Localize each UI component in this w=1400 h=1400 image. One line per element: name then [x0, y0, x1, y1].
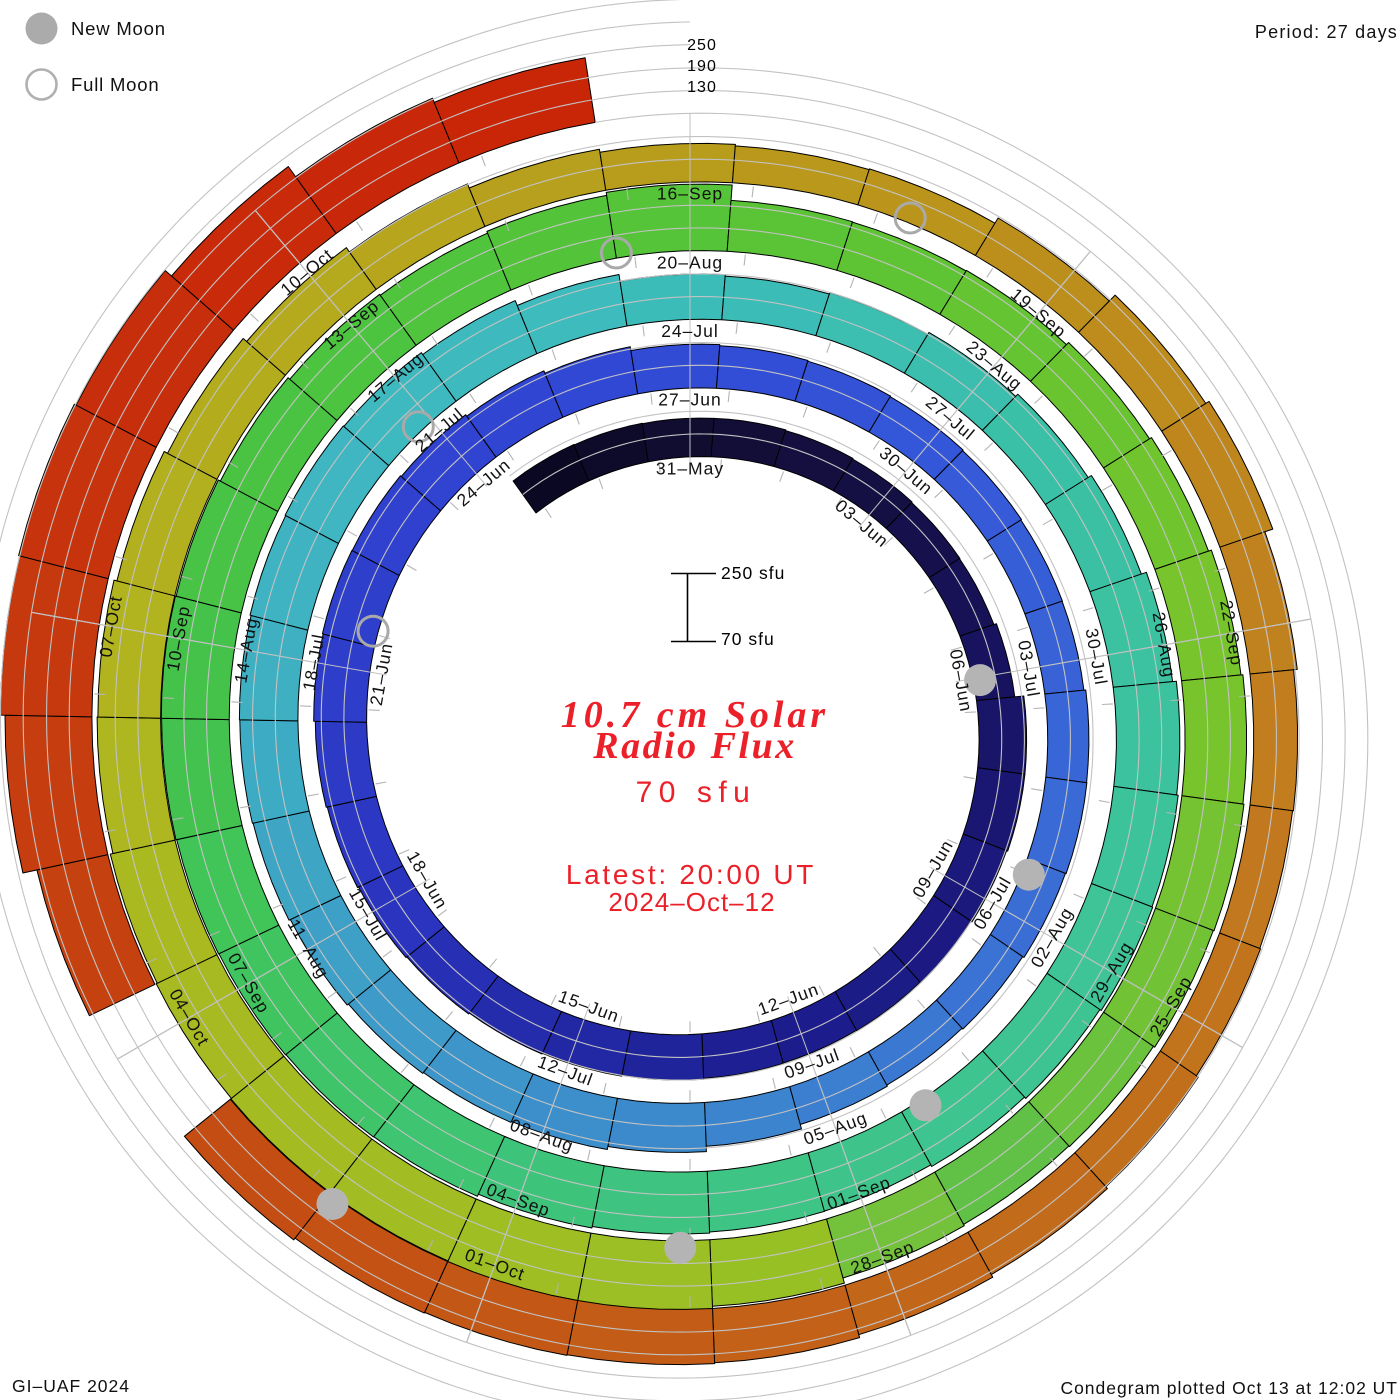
svg-text:Full Moon: Full Moon — [71, 74, 159, 95]
svg-text:New Moon: New Moon — [71, 18, 166, 39]
svg-text:250 sfu: 250 sfu — [721, 563, 785, 583]
svg-text:20–Aug: 20–Aug — [657, 252, 723, 272]
svg-text:2024–Oct–12: 2024–Oct–12 — [608, 887, 775, 917]
svg-text:GI–UAF 2024: GI–UAF 2024 — [12, 1376, 130, 1396]
svg-text:70 sfu: 70 sfu — [636, 776, 757, 809]
svg-text:27–Jun: 27–Jun — [658, 390, 721, 410]
svg-text:24–Jul: 24–Jul — [661, 321, 719, 341]
svg-text:Latest: 20:00 UT: Latest: 20:00 UT — [566, 859, 816, 890]
svg-text:250: 250 — [687, 37, 717, 54]
svg-text:Condegram plotted Oct 13 at 12: Condegram plotted Oct 13 at 12:02 UT — [1060, 1378, 1398, 1398]
svg-text:31–May: 31–May — [656, 458, 724, 478]
svg-text:130: 130 — [687, 79, 717, 96]
svg-text:16–Sep: 16–Sep — [657, 184, 723, 204]
svg-text:190: 190 — [687, 58, 717, 75]
svg-text:Period: 27 days: Period: 27 days — [1255, 22, 1398, 42]
svg-text:70 sfu: 70 sfu — [721, 629, 775, 649]
svg-text:Radio Flux: Radio Flux — [592, 725, 796, 767]
